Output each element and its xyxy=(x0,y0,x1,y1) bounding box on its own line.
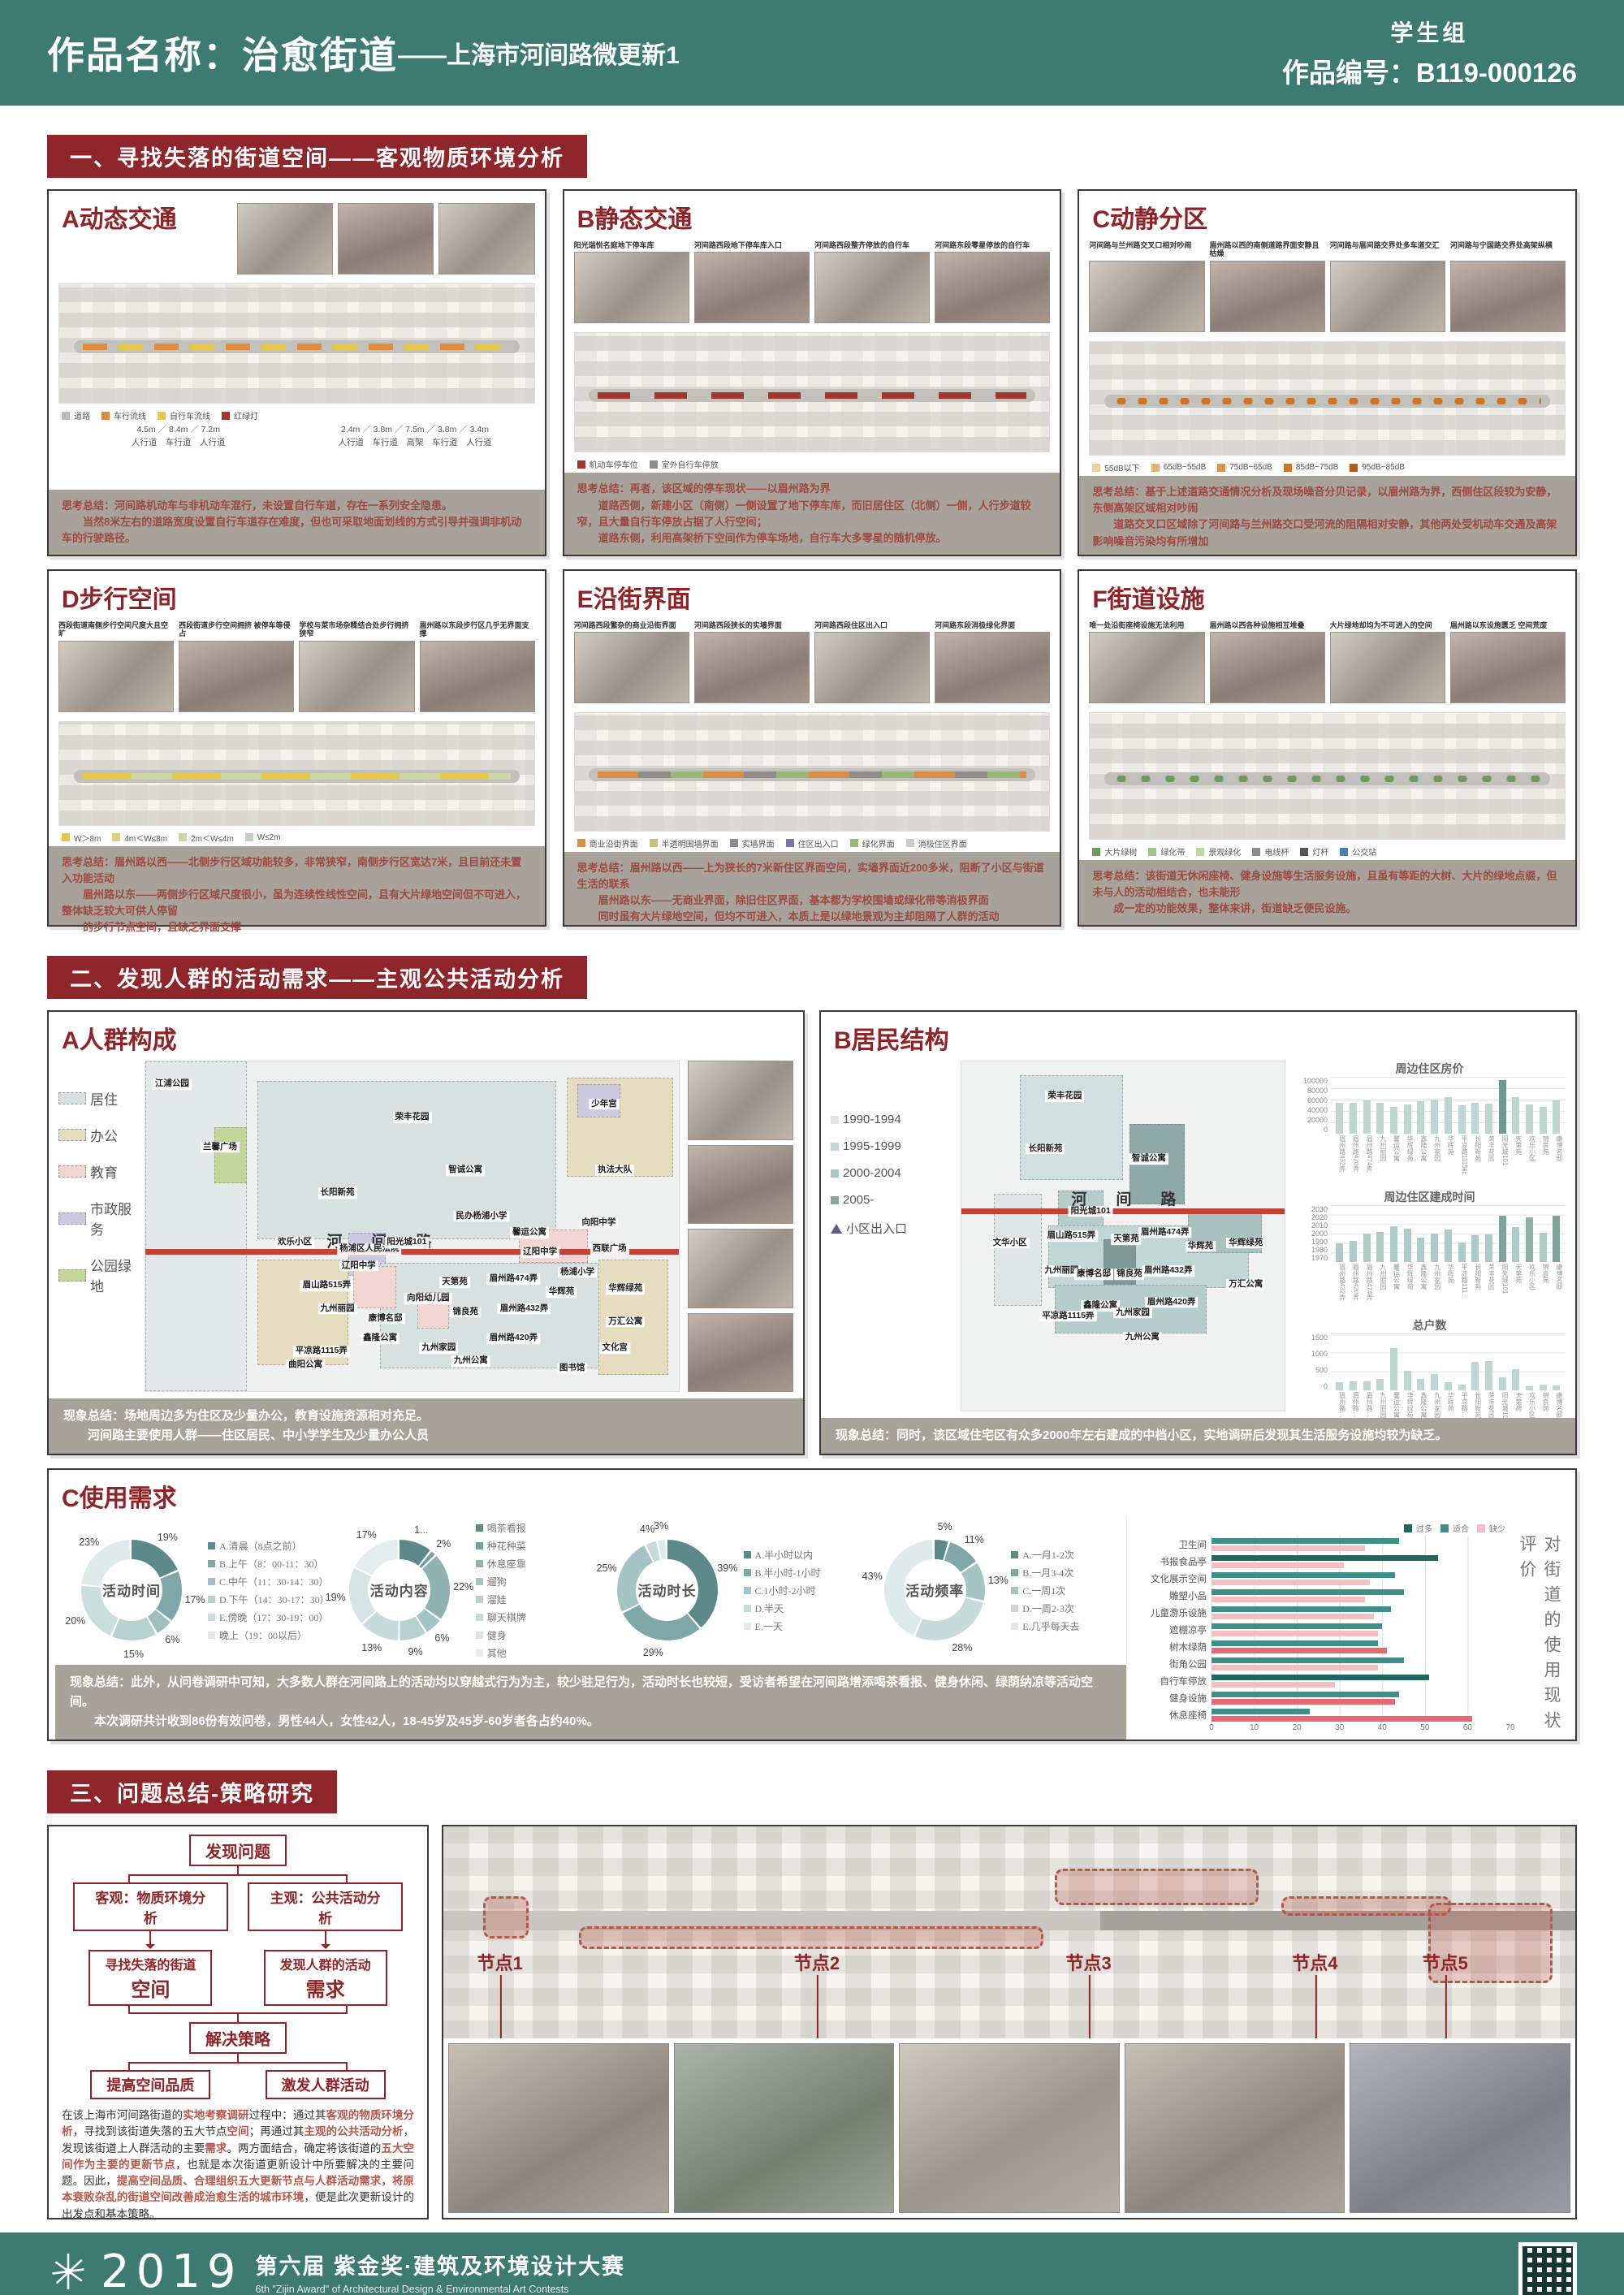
bar xyxy=(1212,1562,1344,1568)
photo xyxy=(299,641,414,712)
donut-value-label: 15% xyxy=(123,1649,144,1660)
map-label: 眉州路432弄 xyxy=(498,1303,551,1315)
bar xyxy=(1212,1640,1378,1646)
panel-f: F街道设施唯一处沿街座椅设施无法利用眉州路以西各种设施相互堆叠大片绿地却均为不可… xyxy=(1078,569,1577,927)
bar xyxy=(1212,1675,1429,1680)
road-band xyxy=(1104,395,1551,408)
legend-item: 2000-2004 xyxy=(831,1166,952,1180)
donut-value-label: 29% xyxy=(643,1647,663,1658)
node-photo xyxy=(1125,2043,1345,2213)
legend-item: 溜娃 xyxy=(476,1593,526,1606)
cross-sections: 4.5m ／ 8.4m ／ 7.2m人行道 车行道 人行道2.4m ／ 3.8m… xyxy=(49,424,545,450)
map-label: 眉州路420弄 xyxy=(1145,1297,1199,1308)
bar xyxy=(1431,1374,1438,1390)
map-label: 华辉绿苑 xyxy=(1226,1238,1265,1249)
panel-title: B静态交通 xyxy=(564,191,1060,236)
donut-value-label: 2% xyxy=(436,1538,451,1549)
map-label: 眉州路420弄 xyxy=(487,1333,541,1344)
photo xyxy=(1210,261,1325,332)
bar-row: 文化展示空间 xyxy=(1127,1570,1510,1587)
legend-item: 实墙界面 xyxy=(730,837,775,849)
legend-swatch xyxy=(476,1560,483,1567)
axis-tick: 10 xyxy=(1250,1723,1259,1732)
legend-label: 喝茶看报 xyxy=(487,1521,526,1535)
node-label: 节点1 xyxy=(477,1949,523,1975)
map-label: 华辉苑 xyxy=(1186,1241,1216,1252)
legend-swatch xyxy=(650,839,658,847)
legend-swatch xyxy=(179,833,187,841)
donut-value-label: 17% xyxy=(356,1529,377,1541)
legend-swatch xyxy=(1300,848,1308,856)
photo-captions: 河间路西段繁杂的商业沿街界面河间路西段狭长的实墙界面河间路西段住区出入口河间路东… xyxy=(564,616,1060,629)
legend-label: 自行车流线 xyxy=(170,409,210,421)
donut-value-label: 5% xyxy=(938,1521,952,1532)
legend-item: 商业沿街界面 xyxy=(577,837,638,849)
donut-value-label: 13% xyxy=(988,1575,1009,1586)
photo xyxy=(237,203,333,274)
bar-track xyxy=(1212,1672,1510,1689)
x-label: 华晖苑 xyxy=(1443,1135,1454,1187)
map-label: 西联广场 xyxy=(590,1244,629,1256)
summary-line: 当然8米左右的道路宽度设置自行车道存在难度，但也可采取地面划线的方式引导并强调非… xyxy=(62,514,532,547)
summary-line: 现象总结：场地周边多为住区及少量办公，教育设施资源相对充足。 xyxy=(63,1407,788,1426)
legend-swatch xyxy=(744,1551,751,1558)
map-label: 华辉绿苑 xyxy=(606,1283,645,1294)
legend-swatch xyxy=(730,839,738,847)
bar xyxy=(1417,1379,1424,1390)
x-label: 天第苑 xyxy=(1510,1264,1522,1316)
axis-tick: 60000 xyxy=(1294,1096,1328,1104)
donut-value-label: 13% xyxy=(361,1642,382,1653)
donut-value-label: 4% xyxy=(640,1524,654,1535)
bar xyxy=(1363,1234,1371,1262)
legend-label: 缺少 xyxy=(1489,1522,1505,1534)
axis-tick: 2030 xyxy=(1294,1205,1328,1213)
legend-item: B.上午（8：00-11：30） xyxy=(208,1557,323,1571)
header: 作品名称：治愈街道 ——上海市河间路微更新1 学生组 作品编号：B119-000… xyxy=(0,0,1624,106)
summary-line: 的步行节点空间，且缺乏界面支撑 xyxy=(62,919,532,936)
legend-swatch xyxy=(906,839,914,847)
photo-caption: 大片绿地却均为不可进入的空间 xyxy=(1330,621,1445,629)
node-photo xyxy=(1350,2043,1570,2213)
bar-track xyxy=(1212,1587,1510,1604)
photo xyxy=(574,632,689,703)
lane-labels: 人行道 车行道 高架 车行道 人行道 xyxy=(296,437,533,450)
panel-title: C使用需求 xyxy=(49,1470,1575,1515)
legend-swatch xyxy=(58,1165,86,1178)
donut-value-label: 3% xyxy=(654,1520,668,1532)
axis-tick: 80000 xyxy=(1294,1087,1328,1095)
legend-swatch xyxy=(831,1169,839,1178)
legend-swatch xyxy=(208,1560,215,1567)
flow-subjective: 主观：公共活动分析 xyxy=(248,1882,403,1931)
photo-caption: 唯一处沿街座椅设施无法利用 xyxy=(1089,621,1204,629)
legend-swatch xyxy=(1350,464,1358,472)
road-accent xyxy=(598,771,1026,778)
main: 一、寻找失落的街道空间——客观物质环境分析 A动态交通道路车行流线自行车流线红绿… xyxy=(0,135,1624,2219)
photo-strip xyxy=(1079,629,1575,706)
legend-swatch xyxy=(1011,1569,1018,1576)
usage-demand-body: 活动时间19%17%6%15%20%23% A.清晨（8点之前）B.上午（8：0… xyxy=(49,1515,1575,1740)
legend-item: D.下午（14：30-17：30） xyxy=(208,1593,323,1606)
photo-captions: 唯一处沿街座椅设施无法利用眉州路以西各种设施相互堆叠大片绿地却均为不可进入的空间… xyxy=(1079,616,1575,629)
map-label: 辽阳中学 xyxy=(520,1247,559,1259)
street-map xyxy=(58,283,535,404)
donut-row: 活动时间19%17%6%15%20%23% A.清晨（8点之前）B.上午（8：0… xyxy=(55,1515,1126,1665)
x-label: 平凉路111... xyxy=(1456,1264,1467,1316)
node-label: 节点5 xyxy=(1423,1949,1468,1975)
legend-item: 遛狗 xyxy=(476,1575,526,1588)
bar xyxy=(1212,1545,1365,1551)
axis-tick: 1980 xyxy=(1294,1246,1328,1254)
panel-title: A人群构成 xyxy=(49,1012,803,1057)
legend-item: 大片绿树 xyxy=(1092,845,1137,858)
panel-a: A动态交通道路车行流线自行车流线红绿灯4.5m ／ 8.4m ／ 7.2m人行道… xyxy=(47,189,546,556)
mini-chart-title: 周边住区房价 xyxy=(1294,1061,1566,1077)
panel-d: D步行空间西段街道南侧步行空间尺度大且空旷西段街道步行空间拥挤 被停车等侵占学校… xyxy=(47,569,546,927)
bar xyxy=(1212,1589,1404,1595)
photo-caption: 学校与菜市场杂糅结合处步行拥挤狭窄 xyxy=(299,621,414,638)
axis-tick: 20 xyxy=(1293,1723,1302,1732)
legend-swatch xyxy=(1252,848,1260,856)
qr-code xyxy=(1518,2242,1577,2295)
bar xyxy=(1471,1235,1479,1262)
legend-swatch xyxy=(1092,848,1100,856)
legend-label: B.一月3-4次 xyxy=(1022,1566,1073,1580)
x-label: 九州丽园 xyxy=(1375,1264,1386,1316)
panel-title: F街道设施 xyxy=(1079,571,1575,616)
bar xyxy=(1526,1386,1533,1390)
contest-title: 第六届 紫金奖·建筑及环境设计大赛 xyxy=(256,2249,626,2280)
summary-line: 成一定的功能效果，整体来讲，街道缺乏便民设施。 xyxy=(1092,901,1562,917)
y-axis: 2030202020102000199019801970 xyxy=(1294,1205,1331,1262)
summary-line: 思考总结：眉州路以西——北侧步行区域功能较多，非常狭窄，南侧步行区宽达7米，且目… xyxy=(62,854,532,887)
bar xyxy=(1350,1103,1357,1134)
legend-swatch xyxy=(831,1143,839,1151)
legend-item: 1990-1994 xyxy=(831,1113,952,1126)
legend-label: E.一天 xyxy=(755,1619,783,1633)
map-label: 江浦公园 xyxy=(153,1079,192,1091)
photo-caption: 河间路东段消极绿化界面 xyxy=(935,621,1050,629)
x-label: 欢乐小区 xyxy=(1524,1264,1535,1316)
panel-resident-structure: B居民结构 1990-19941995-19992000-20042005-小区… xyxy=(819,1010,1577,1455)
road-band xyxy=(589,768,1035,781)
legend-label: 商业沿街界面 xyxy=(590,837,638,849)
flow-discover-problem: 发现问题 xyxy=(189,1835,287,1866)
landuse-legend: 居住办公教育市政服务公园绿地 xyxy=(58,1061,136,1392)
photo xyxy=(688,1145,793,1225)
paragraph-segment: ；再通过其 xyxy=(249,2125,304,2137)
bar xyxy=(1553,1385,1560,1390)
summary-line: 眉州路以东——无商业界面，除旧住区界面，基本都为学校围墙或绿化带等消极界面 xyxy=(577,892,1047,909)
bars xyxy=(1331,1333,1566,1390)
photo-strip xyxy=(49,638,545,715)
legend-label: 过多 xyxy=(1416,1522,1432,1534)
axis-tick: 2000 xyxy=(1294,1230,1328,1238)
summary-line: 眉州路以东——两侧步行区域尺度很小，虽为连续性线性空间，且有大片绿地空间但不可进… xyxy=(62,887,532,919)
bar-row: 雕塑小品 xyxy=(1127,1587,1510,1604)
map-label: 锦良苑 xyxy=(1114,1269,1145,1281)
legend-label: 道路 xyxy=(74,409,90,421)
renewal-zone xyxy=(1055,1869,1259,1904)
bar-category: 树木绿荫 xyxy=(1127,1640,1212,1653)
donut-activity-frequency-group: 活动频率5%11%13%28%43% A.一月1-2次B.一月3-4次C.一周1… xyxy=(858,1520,1126,1660)
legend-label: 灯杆 xyxy=(1312,845,1328,858)
legend-item: A.清晨（8点之前） xyxy=(208,1539,323,1553)
entry-code: 作品编号：B119-000126 xyxy=(1282,51,1577,90)
y-axis: 150010005000 xyxy=(1294,1333,1331,1390)
bar xyxy=(1499,1080,1506,1135)
section1-title: 一、寻找失落的街道空间——客观物质环境分析 xyxy=(47,135,587,178)
bar-category: 儿童游乐设施 xyxy=(1127,1606,1212,1619)
axis-tick: 1000 xyxy=(1294,1350,1328,1358)
legend-label: D.下午（14：30-17：30） xyxy=(219,1593,323,1606)
axis-tick: 60 xyxy=(1463,1723,1472,1732)
legend-label: 85dB~75dB xyxy=(1296,463,1339,472)
x-label: 天第苑 xyxy=(1510,1135,1522,1187)
legend-item: 健身 xyxy=(476,1628,526,1642)
map-label: 眉州路474弄 xyxy=(1138,1227,1192,1238)
bar-track xyxy=(1212,1553,1510,1570)
map-legend: 道路车行流线自行车流线红绿灯 xyxy=(49,407,545,424)
legend-swatch xyxy=(1440,1524,1449,1532)
street-map xyxy=(574,712,1051,832)
legend-swatch xyxy=(222,412,230,420)
paragraph-segment: 。两方面结合，确定将该街道的 xyxy=(227,2142,381,2155)
donut-legend: A.清晨（8点之前）B.上午（8：00-11：30）C.中午（11：30-14：… xyxy=(208,1539,323,1642)
legend-label: 室外自行车停放 xyxy=(662,458,719,470)
bar xyxy=(1376,1232,1384,1262)
street-map xyxy=(1089,712,1566,840)
legend-swatch xyxy=(1011,1551,1018,1558)
street-map xyxy=(1089,341,1566,456)
analysis-row-2: D步行空间西段街道南侧步行空间尺度大且空旷西段街道步行空间拥挤 被停车等侵占学校… xyxy=(47,556,1577,927)
built-year-map: 河间路 荣丰花园长阳新苑智诚公寓阳光城101文华小区眉山路515弄天第苑眉州路4… xyxy=(961,1061,1285,1411)
map-label: 九州家园 xyxy=(1113,1307,1152,1319)
bar-row: 书报食品亭 xyxy=(1127,1553,1510,1570)
bar xyxy=(1417,1101,1424,1134)
photo-caption: 河间路与兰州路交叉口相对吵闹 xyxy=(1089,241,1204,258)
legend-swatch xyxy=(744,1569,751,1576)
legend-swatch xyxy=(476,1649,483,1657)
legend-swatch xyxy=(1404,1524,1412,1532)
node-photo xyxy=(448,2043,669,2213)
street-photos-column xyxy=(688,1061,793,1392)
legend-item: E.傍晚（17：30-19：00） xyxy=(208,1610,323,1624)
legend-label: 适合 xyxy=(1453,1522,1469,1534)
bar xyxy=(1336,1243,1343,1262)
donut-value-label: 39% xyxy=(717,1562,737,1574)
legend-label: 半透明围墙界面 xyxy=(662,837,719,849)
map-label: 智诚公寓 xyxy=(1129,1154,1168,1165)
photo xyxy=(58,641,174,712)
cross-section: 2.4m ／ 3.8m ／ 7.5m ／ 3.8m ／ 3.4m人行道 车行道 … xyxy=(296,424,533,450)
legend-swatch xyxy=(650,460,658,469)
plot-area xyxy=(1331,1333,1566,1390)
x-label: 荣丰花园 xyxy=(1484,1264,1495,1316)
x-label: 九州家园 xyxy=(1429,1135,1440,1187)
legend-label: 市政服务 xyxy=(90,1198,136,1238)
thinking-summary: 思考总结：再者，该区域的停车现状——以眉州路为界道路西侧，新建小区（南侧）一侧设… xyxy=(564,473,1060,555)
photo xyxy=(694,632,810,703)
photo-caption: 西段街道步行空间拥挤 被停车等侵占 xyxy=(179,621,294,638)
axis-tick: 0 xyxy=(1294,1382,1328,1390)
renewal-zone xyxy=(579,1926,1043,1950)
axis-tick: 500 xyxy=(1294,1366,1328,1374)
legend-item: 绿化界面 xyxy=(850,837,895,849)
legend-item: 4m＜W≤8m xyxy=(112,832,167,844)
node-label: 节点2 xyxy=(794,1949,840,1975)
map-label: 九州公寓 xyxy=(451,1356,490,1368)
plot-area xyxy=(1331,1077,1566,1134)
legend-item: W＞8m xyxy=(62,832,101,844)
legend-label: 55dB以下 xyxy=(1104,461,1139,473)
photo-captions: 河间路与兰州路交叉口相对吵闹眉州路以西的南侧道路界面安静且枯燥河间路与眉间路交界… xyxy=(1079,236,1575,258)
bar xyxy=(1526,1104,1533,1134)
footer-titles: 第六届 紫金奖·建筑及环境设计大赛 6th "Zijin Award" of A… xyxy=(256,2249,626,2295)
legend-item: 住区出入口 xyxy=(786,837,839,849)
legend-label: 1995-1999 xyxy=(843,1139,901,1153)
bar-category: 卫生间 xyxy=(1127,1538,1212,1551)
summary-line: 思考总结：该街道无休闲座椅、健身设施等生活服务设施，且虽有等距的大树、大片的绿地… xyxy=(1092,868,1562,901)
legend-label: 公交站 xyxy=(1352,845,1376,858)
bar-track xyxy=(1212,1689,1510,1706)
legend-swatch xyxy=(1092,464,1100,472)
bar-category: 遮棚凉亭 xyxy=(1127,1623,1212,1636)
legend-item: 适合 xyxy=(1440,1522,1469,1534)
legend-item: 灯杆 xyxy=(1300,845,1328,858)
legend-swatch xyxy=(1196,848,1204,856)
photo-caption: 河间路西段整齐停放的自行车 xyxy=(814,241,930,249)
axis-tick: 0 xyxy=(1209,1723,1214,1732)
footer: 2019 第六届 紫金奖·建筑及环境设计大赛 6th "Zijin Award"… xyxy=(0,2232,1624,2295)
legend-label: 65dB~55dB xyxy=(1164,463,1207,472)
lane-labels: 人行道 车行道 人行道 xyxy=(60,437,296,450)
legend-item: 2005- xyxy=(831,1193,952,1207)
legend-swatch xyxy=(62,833,70,841)
bar xyxy=(1485,1234,1492,1262)
x-label: 荣丰花园 xyxy=(1484,1135,1495,1187)
bar xyxy=(1212,1648,1387,1653)
legend-swatch xyxy=(476,1542,483,1549)
map-block xyxy=(257,1081,556,1239)
group-label: 学生组 xyxy=(1282,15,1577,48)
bar-track xyxy=(1212,1638,1510,1655)
bar xyxy=(1431,1100,1438,1134)
map-block xyxy=(214,1127,246,1183)
bar xyxy=(1390,1348,1397,1390)
donut-activity-duration: 活动时长39%29%25%4%3% xyxy=(591,1520,744,1660)
legend-label: 消极住区界面 xyxy=(918,837,967,849)
cross-section: 4.5m ／ 8.4m ／ 7.2m人行道 车行道 人行道 xyxy=(60,424,296,450)
bar xyxy=(1445,1382,1452,1390)
paragraph-segment: 实地考察调研 xyxy=(183,2109,248,2121)
legend-label: A.清晨（8点之前） xyxy=(219,1539,302,1553)
thinking-summary: 思考总结：河间路机动车与非机动车混行，未设置自行车道，存在一系列安全隐患。当然8… xyxy=(49,490,545,555)
summary-line: 道路东侧，利用高架桥下空间作为停车场地，自行车大多零星的随机停放。 xyxy=(577,530,1047,547)
legend-label: 遛狗 xyxy=(487,1575,507,1588)
bar xyxy=(1512,1227,1519,1262)
bar-track xyxy=(1212,1604,1510,1621)
legend-item: 其他 xyxy=(476,1646,526,1660)
bar xyxy=(1212,1572,1395,1578)
legend-label: 75dB~65dB xyxy=(1229,463,1272,472)
x-label: 馨运公寓 xyxy=(1389,1264,1400,1316)
legend-swatch xyxy=(158,412,166,420)
legend-item: 市政服务 xyxy=(58,1198,136,1238)
renewal-zone xyxy=(1281,1896,1451,1915)
resident-charts-column: 周边住区房价100000800006000040000200000眉州路432弄… xyxy=(1294,1061,1566,1411)
legend-item: E.几乎每天去 xyxy=(1011,1619,1079,1633)
photo-captions: 西段街道南侧步行空间尺度大且空旷西段街道步行空间拥挤 被停车等侵占学校与菜市场杂… xyxy=(49,616,545,638)
thinking-summary: 思考总结：该街道无休闲座椅、健身设施等生活服务设施，且虽有等距的大树、大片的绿地… xyxy=(1079,860,1575,925)
legend-swatch xyxy=(208,1632,215,1639)
legend-swatch xyxy=(744,1623,751,1630)
mini-chart-body: 100000800006000040000200000 xyxy=(1294,1077,1566,1134)
map-label: 执法大队 xyxy=(595,1165,634,1176)
legend-label: C.一周1次 xyxy=(1022,1584,1065,1597)
x-label: 康博名邸 xyxy=(1551,1135,1562,1187)
summary-line: 本次调研共计收到86份有效问卷，男性44人，女性42人，18-45岁及45岁-6… xyxy=(70,1712,1112,1731)
x-label: 九州家园 xyxy=(1429,1264,1440,1316)
legend-item: 机动车停车位 xyxy=(577,458,638,470)
legend-label: 1990-1994 xyxy=(843,1113,901,1126)
legend-swatch xyxy=(1477,1524,1485,1532)
summary-line: 道路交叉口区域除了河间路与兰州路交口受河流的阻隔相对安静，其他两处受机动车交通及… xyxy=(1092,516,1562,549)
flow-activity-demand: 发现人群的活动需求 xyxy=(264,1950,387,2006)
photo-caption: 河间路西段住区出入口 xyxy=(814,621,930,629)
x-label: 华辉绿苑 xyxy=(1402,1264,1414,1316)
map-label: 阳光城101 xyxy=(384,1238,429,1249)
legend-swatch xyxy=(208,1614,215,1621)
legend-label: W＞8m xyxy=(74,832,101,844)
mini-chart-body: 2030202020102000199019801970 xyxy=(1294,1205,1566,1262)
photo-caption: 阳光瑞悦名庭地下停车库 xyxy=(574,241,689,249)
legend-label: A.半小时以内 xyxy=(755,1548,814,1562)
map-label: 向阳幼儿园 xyxy=(404,1294,452,1305)
map-label: 荣丰花园 xyxy=(1045,1091,1084,1102)
legend-swatch xyxy=(208,1596,215,1603)
bar xyxy=(1212,1623,1382,1629)
legend-label: 机动车停车位 xyxy=(590,458,638,470)
x-label: 阳光城101 xyxy=(1497,1264,1508,1316)
section3-title: 三、问题总结-策略研究 xyxy=(47,1770,337,1813)
built-year-legend: 1990-19941995-19992000-20042005-小区出入口 xyxy=(831,1061,952,1411)
legend-label: 居住 xyxy=(90,1088,118,1109)
legend-item: 85dB~75dB xyxy=(1284,463,1339,472)
summary-line: 思考总结：眉州路以西——上为狭长的7米新住区界面空间，实墙界面近200多米，阻断… xyxy=(577,860,1047,892)
analysis-row-1: A动态交通道路车行流线自行车流线红绿灯4.5m ／ 8.4m ／ 7.2m人行道… xyxy=(47,189,1577,556)
photo-caption: 河间路与眉间路交界处多车道交汇 xyxy=(1330,241,1445,258)
map-label: 长阳新苑 xyxy=(318,1188,357,1199)
donut-value-label: 20% xyxy=(65,1615,85,1627)
bar xyxy=(1350,1381,1357,1390)
map-label: 文化宫 xyxy=(599,1342,630,1354)
bar xyxy=(1212,1538,1399,1544)
axis-tick: 2010 xyxy=(1294,1221,1328,1230)
mini-chart-title: 总户数 xyxy=(1294,1317,1566,1333)
legend-label: E.几乎每天去 xyxy=(1022,1619,1079,1633)
bar xyxy=(1212,1665,1378,1670)
legend-item: 红绿灯 xyxy=(222,409,258,421)
x-label: 平凉路1115弄 xyxy=(1456,1135,1467,1187)
bar xyxy=(1212,1692,1399,1697)
photo xyxy=(574,252,689,323)
legend-item: 教育 xyxy=(58,1161,136,1182)
street-map xyxy=(58,721,535,826)
donut-activity-frequency: 活动频率5%11%13%28%43% xyxy=(858,1520,1011,1660)
legend-item: 缺少 xyxy=(1477,1522,1505,1534)
